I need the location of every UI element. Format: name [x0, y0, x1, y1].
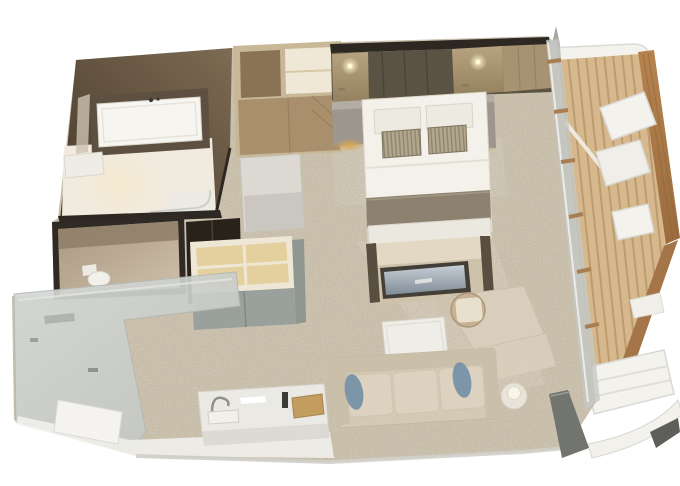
tub-faucet — [149, 98, 153, 102]
bathtub — [97, 97, 202, 147]
wet-bar — [198, 384, 330, 446]
vanity-counter — [64, 152, 104, 178]
striped-cushion-right — [428, 125, 467, 154]
vanity-mirror — [76, 94, 90, 154]
sofa-cushion-2 — [393, 370, 440, 415]
striped-cushion-left — [382, 129, 421, 158]
sconce-left — [348, 64, 353, 69]
table-lamp — [508, 387, 521, 400]
switch-plate-right — [462, 84, 469, 87]
switch-plate-left — [338, 88, 345, 91]
bar-serving-board — [292, 394, 324, 418]
dresser-front — [244, 192, 304, 232]
chair-seat — [455, 297, 483, 323]
entry-handle-1 — [30, 338, 38, 342]
bathroom — [58, 48, 232, 227]
bar-sink — [208, 410, 239, 424]
entry-handle-2 — [88, 368, 98, 372]
wardrobe-cubby-dark — [240, 50, 281, 98]
nightstand-left-gold-base — [334, 138, 365, 152]
bar-bottle — [282, 392, 288, 408]
floor-plan-rendering — [0, 0, 680, 486]
floor-plan-page — [0, 0, 680, 486]
sconce-right — [476, 60, 481, 65]
bedroom-tan-wall — [502, 44, 552, 92]
tub-handle — [156, 97, 159, 100]
